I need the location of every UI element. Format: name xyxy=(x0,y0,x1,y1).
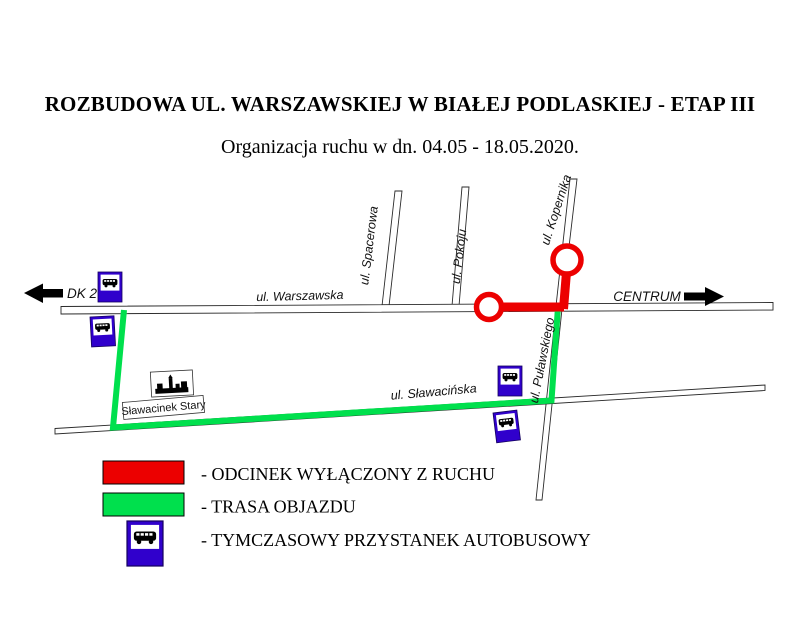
label-slawacinska: ul. Sławacińska xyxy=(390,381,477,402)
label-warszawska: ul. Warszawska xyxy=(256,288,344,304)
closed-section-group xyxy=(477,246,582,320)
arrow-left-icon xyxy=(24,284,63,304)
legend: - ODCINEK WYŁĄCZONY Z RUCHU - TRASA OBJA… xyxy=(103,461,591,566)
legend-closed-swatch xyxy=(103,461,184,484)
direction-east-label: CENTRUM xyxy=(613,289,681,304)
closed-section-vertical xyxy=(564,272,567,309)
bus-stop-icon xyxy=(98,272,122,302)
legend-detour-swatch xyxy=(103,493,184,516)
bus-stop-icon xyxy=(90,316,116,347)
town-marker xyxy=(150,370,193,397)
bus-stop-icon xyxy=(498,366,522,396)
closure-point-west-icon xyxy=(477,295,502,320)
legend-bus-stop-icon xyxy=(127,521,163,566)
legend-detour-label: - TRASA OBJAZDU xyxy=(201,497,356,517)
street-warszawska xyxy=(61,303,773,315)
streets-group xyxy=(55,179,773,500)
label-spacerowa: ul. Spacerowa xyxy=(357,205,381,285)
legend-closed-label: - ODCINEK WYŁĄCZONY Z RUCHU xyxy=(201,464,495,484)
street-labels-group: ul. Warszawska ul. Spacerowa ul. Pokoju … xyxy=(256,173,574,404)
place-box: Sławacinek Stary xyxy=(121,395,207,419)
closure-point-north-icon xyxy=(553,246,581,274)
traffic-map: DK 2 CENTRUM ul. Warszawska ul. Spacerow… xyxy=(0,0,800,640)
street-spacerowa xyxy=(382,191,402,306)
label-pokoju: ul. Pokoju xyxy=(449,228,470,284)
direction-west-label: DK 2 xyxy=(67,286,98,301)
bus-stop-icon xyxy=(493,410,520,443)
legend-bus-stop-label: - TYMCZASOWY PRZYSTANEK AUTOBUSOWY xyxy=(201,530,591,550)
